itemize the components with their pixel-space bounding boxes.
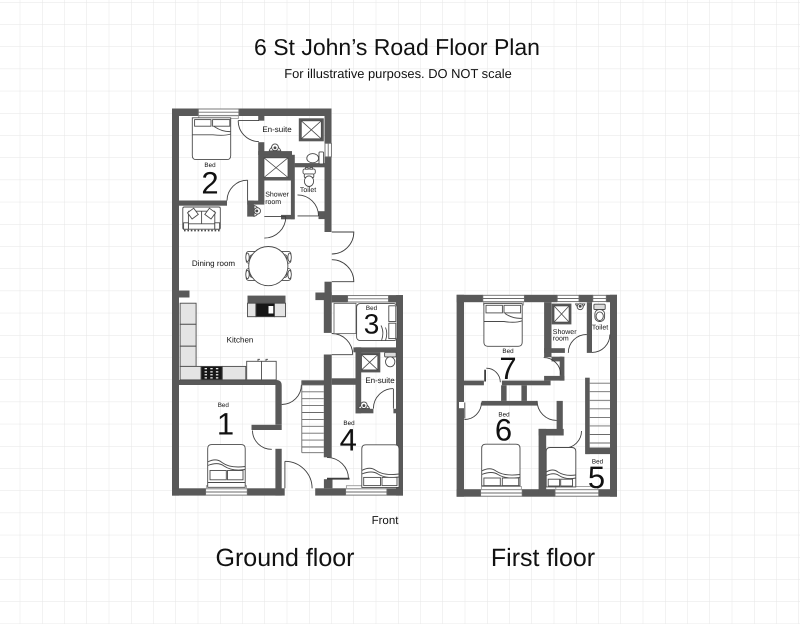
- svg-text:7: 7: [499, 351, 516, 386]
- svg-text:Shower: Shower: [265, 191, 289, 199]
- svg-text:First floor: First floor: [491, 544, 595, 572]
- svg-text:Front: Front: [372, 515, 400, 527]
- svg-text:Toilet: Toilet: [300, 186, 316, 194]
- svg-text:Kitchen: Kitchen: [227, 335, 254, 344]
- svg-text:For illustrative purposes. DO: For illustrative purposes. DO NOT scale: [284, 66, 512, 81]
- svg-text:5: 5: [588, 460, 605, 495]
- svg-text:En-suite: En-suite: [262, 125, 292, 134]
- svg-text:2: 2: [201, 166, 218, 201]
- svg-text:Dining room: Dining room: [192, 259, 235, 268]
- svg-text:Toilet: Toilet: [592, 323, 608, 331]
- svg-text:3: 3: [364, 309, 380, 340]
- svg-text:Ground floor: Ground floor: [216, 544, 355, 572]
- svg-text:6: 6: [495, 413, 512, 448]
- svg-text:6 St John’s Road Floor Plan: 6 St John’s Road Floor Plan: [254, 34, 540, 60]
- svg-text:room: room: [553, 336, 569, 343]
- svg-text:Shower: Shower: [553, 328, 577, 336]
- svg-text:En-suite: En-suite: [365, 376, 395, 385]
- svg-text:4: 4: [340, 422, 357, 457]
- svg-text:1: 1: [217, 407, 234, 442]
- svg-text:room: room: [265, 199, 281, 206]
